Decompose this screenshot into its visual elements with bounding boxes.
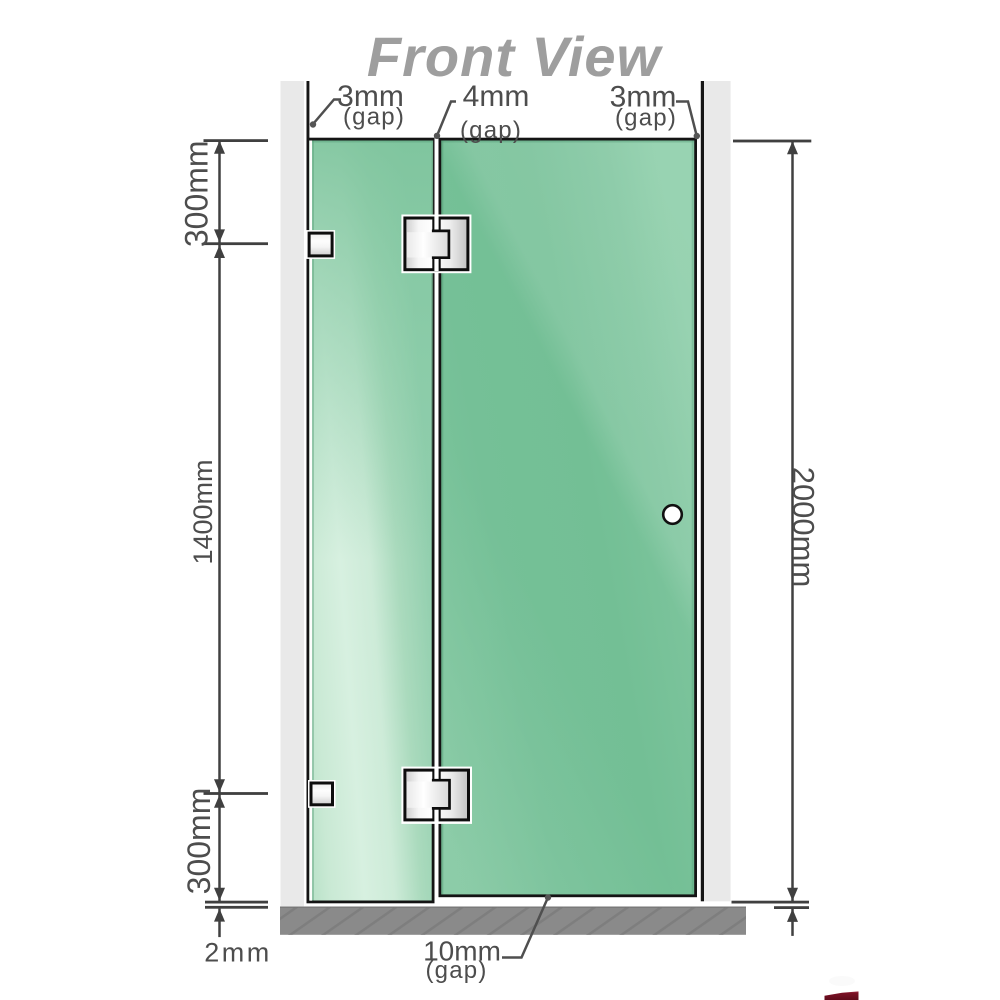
svg-text:(gap): (gap) <box>425 957 487 984</box>
svg-text:(gap): (gap) <box>460 117 522 144</box>
svg-text:4mm: 4mm <box>463 80 530 113</box>
svg-text:(gap): (gap) <box>615 105 677 132</box>
svg-text:300mm: 300mm <box>181 788 217 895</box>
svg-text:Front View: Front View <box>367 25 664 88</box>
svg-text:300mm: 300mm <box>179 140 215 247</box>
svg-text:2000mm: 2000mm <box>786 467 821 588</box>
svg-text:2mm: 2mm <box>204 938 272 968</box>
svg-text:(gap): (gap) <box>343 104 405 131</box>
svg-text:1400mm: 1400mm <box>188 459 218 564</box>
